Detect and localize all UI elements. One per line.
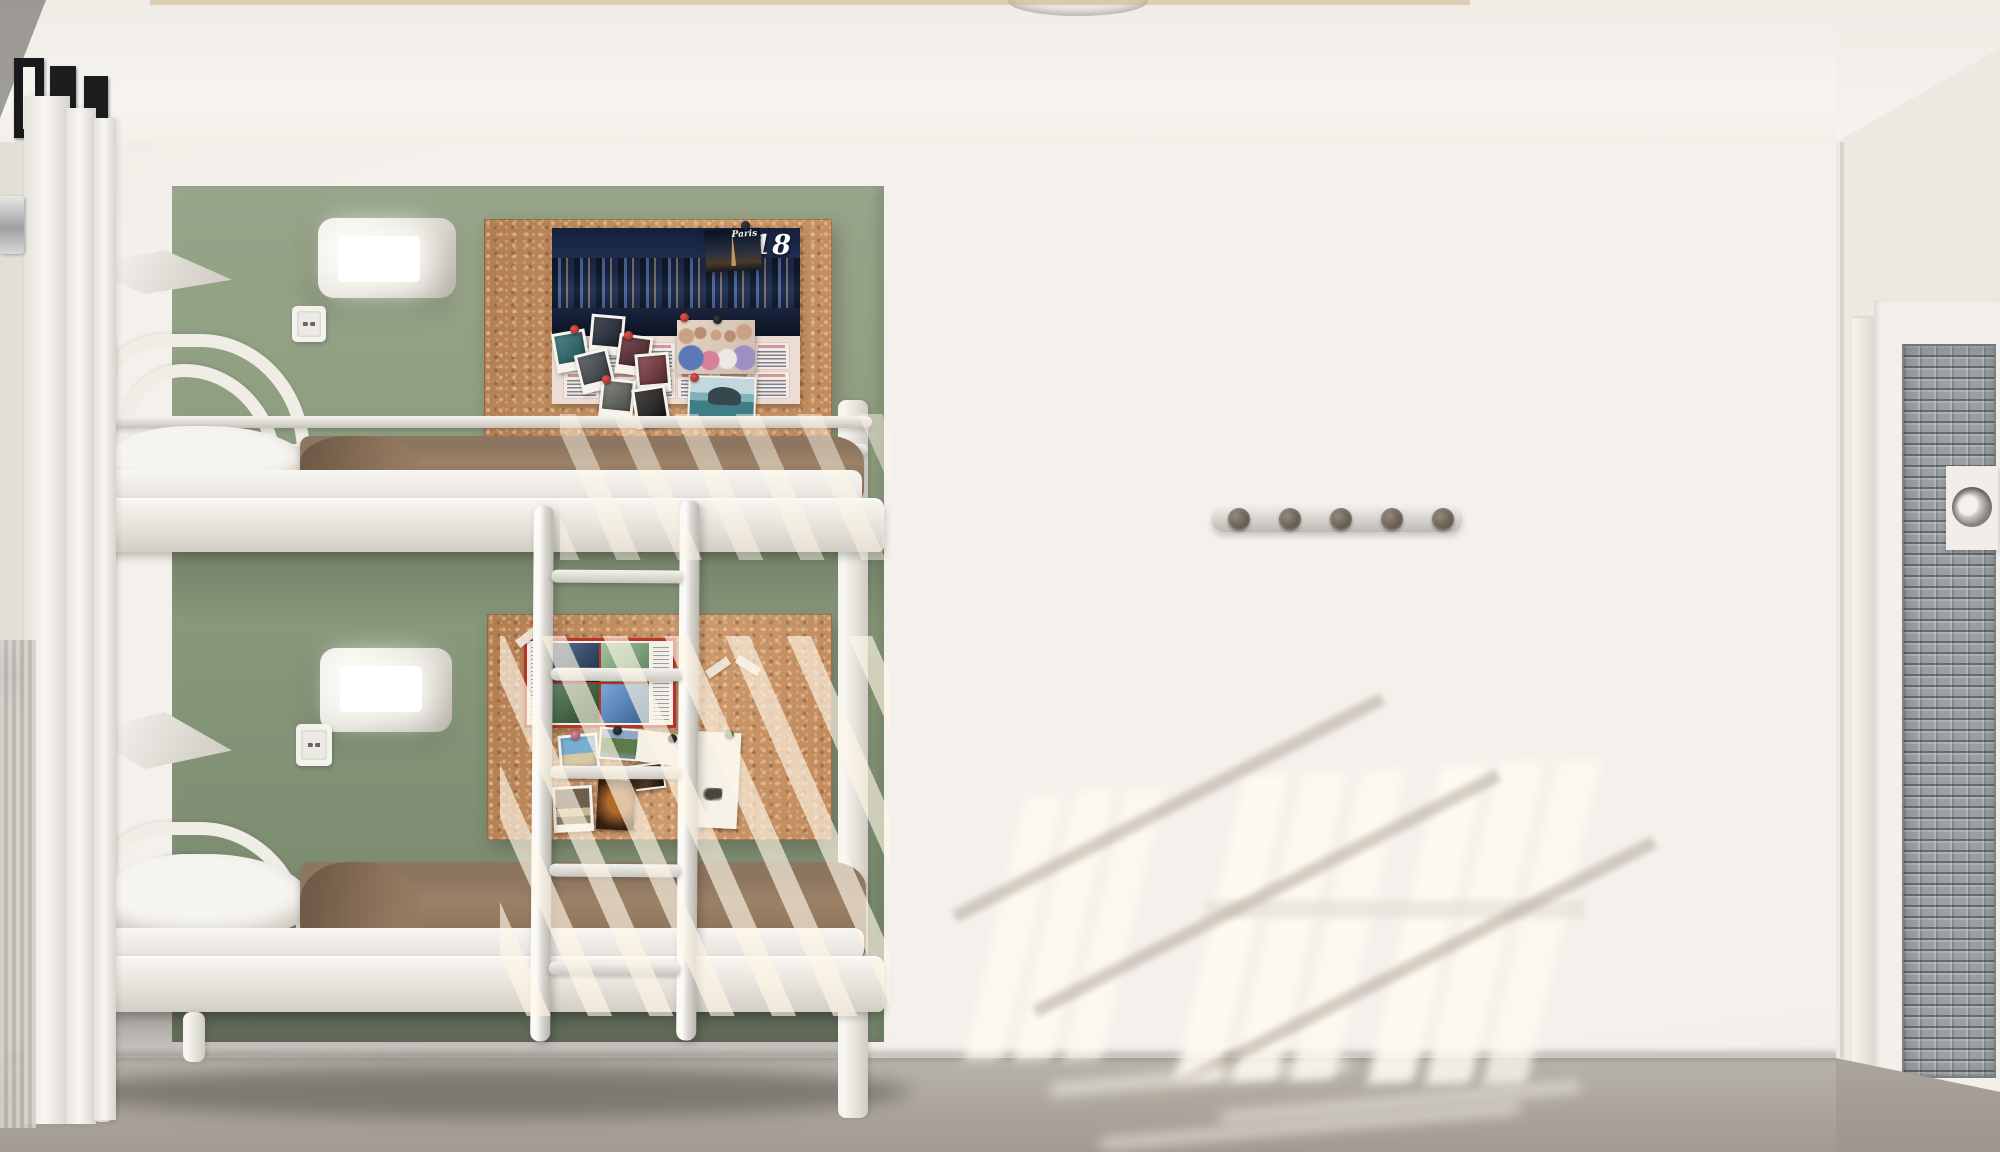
top-bunk-platform: [76, 498, 884, 552]
coat-hook: [1279, 508, 1301, 530]
coat-hook: [1381, 508, 1403, 530]
polaroid-image: [638, 355, 668, 385]
ladder-rung: [550, 766, 682, 780]
bunk-ladder: [522, 495, 706, 1052]
polaroid-cluster: [484, 219, 832, 442]
door-wall-crease: [1840, 142, 1844, 1058]
ceiling: [0, 0, 2000, 142]
pushpin-green: [725, 730, 734, 739]
pushpin-black: [713, 315, 722, 324]
coat-rack: [1212, 506, 1462, 532]
ladder-rung: [549, 962, 681, 976]
letter-sketch: [702, 787, 723, 801]
wall-lamp-upper: [318, 218, 456, 298]
pushpin-red: [624, 331, 633, 340]
curtain-panel: [94, 118, 116, 1120]
bottom-bunk-platform: [76, 956, 884, 1012]
wall-lamp-lower: [320, 648, 452, 732]
pushpin-red: [690, 373, 699, 382]
dorm-room-render: 2018 Paris: [0, 0, 2000, 1152]
tape-strip: [735, 655, 762, 676]
coat-hook: [1228, 508, 1250, 530]
pushpin-red: [570, 325, 579, 334]
bed-mid-leg: [183, 1012, 205, 1062]
curtain-wall-clamp: [0, 196, 24, 254]
power-outlet-lower: [296, 724, 332, 766]
right-wall: [1836, 48, 2000, 1152]
power-outlet-upper: [292, 306, 326, 342]
lamp-light-face: [340, 666, 422, 712]
curtain-panel: [66, 108, 96, 1124]
outlet-plate: [301, 730, 326, 760]
bed-floor-shadow: [70, 1066, 910, 1118]
door-frame: [1852, 318, 1874, 1108]
pushpin-black: [741, 221, 750, 230]
ladder-rung: [551, 668, 683, 682]
coat-hook: [1330, 508, 1352, 530]
pleated-curtain: [0, 640, 36, 1128]
outlet-plate: [297, 311, 321, 337]
pushpin-red: [680, 313, 689, 322]
lamp-light-face: [338, 236, 420, 282]
pushpin-red: [602, 375, 611, 384]
ladder-rung: [551, 570, 683, 584]
door-mesh-panel: [1902, 344, 1996, 1078]
coat-hook: [1432, 508, 1454, 530]
polaroid-image: [602, 381, 633, 412]
polaroid-photo: [598, 377, 636, 420]
ladder-rung: [549, 864, 681, 878]
door-recessed-handle: [1952, 487, 1992, 527]
ceiling-edge-strip: [150, 0, 1470, 5]
under-bed-shadow: [92, 1012, 868, 1058]
door-handle-plate: [1946, 466, 1998, 550]
tape-strip: [705, 656, 731, 678]
cork-board-upper: 2018 Paris: [484, 219, 832, 442]
